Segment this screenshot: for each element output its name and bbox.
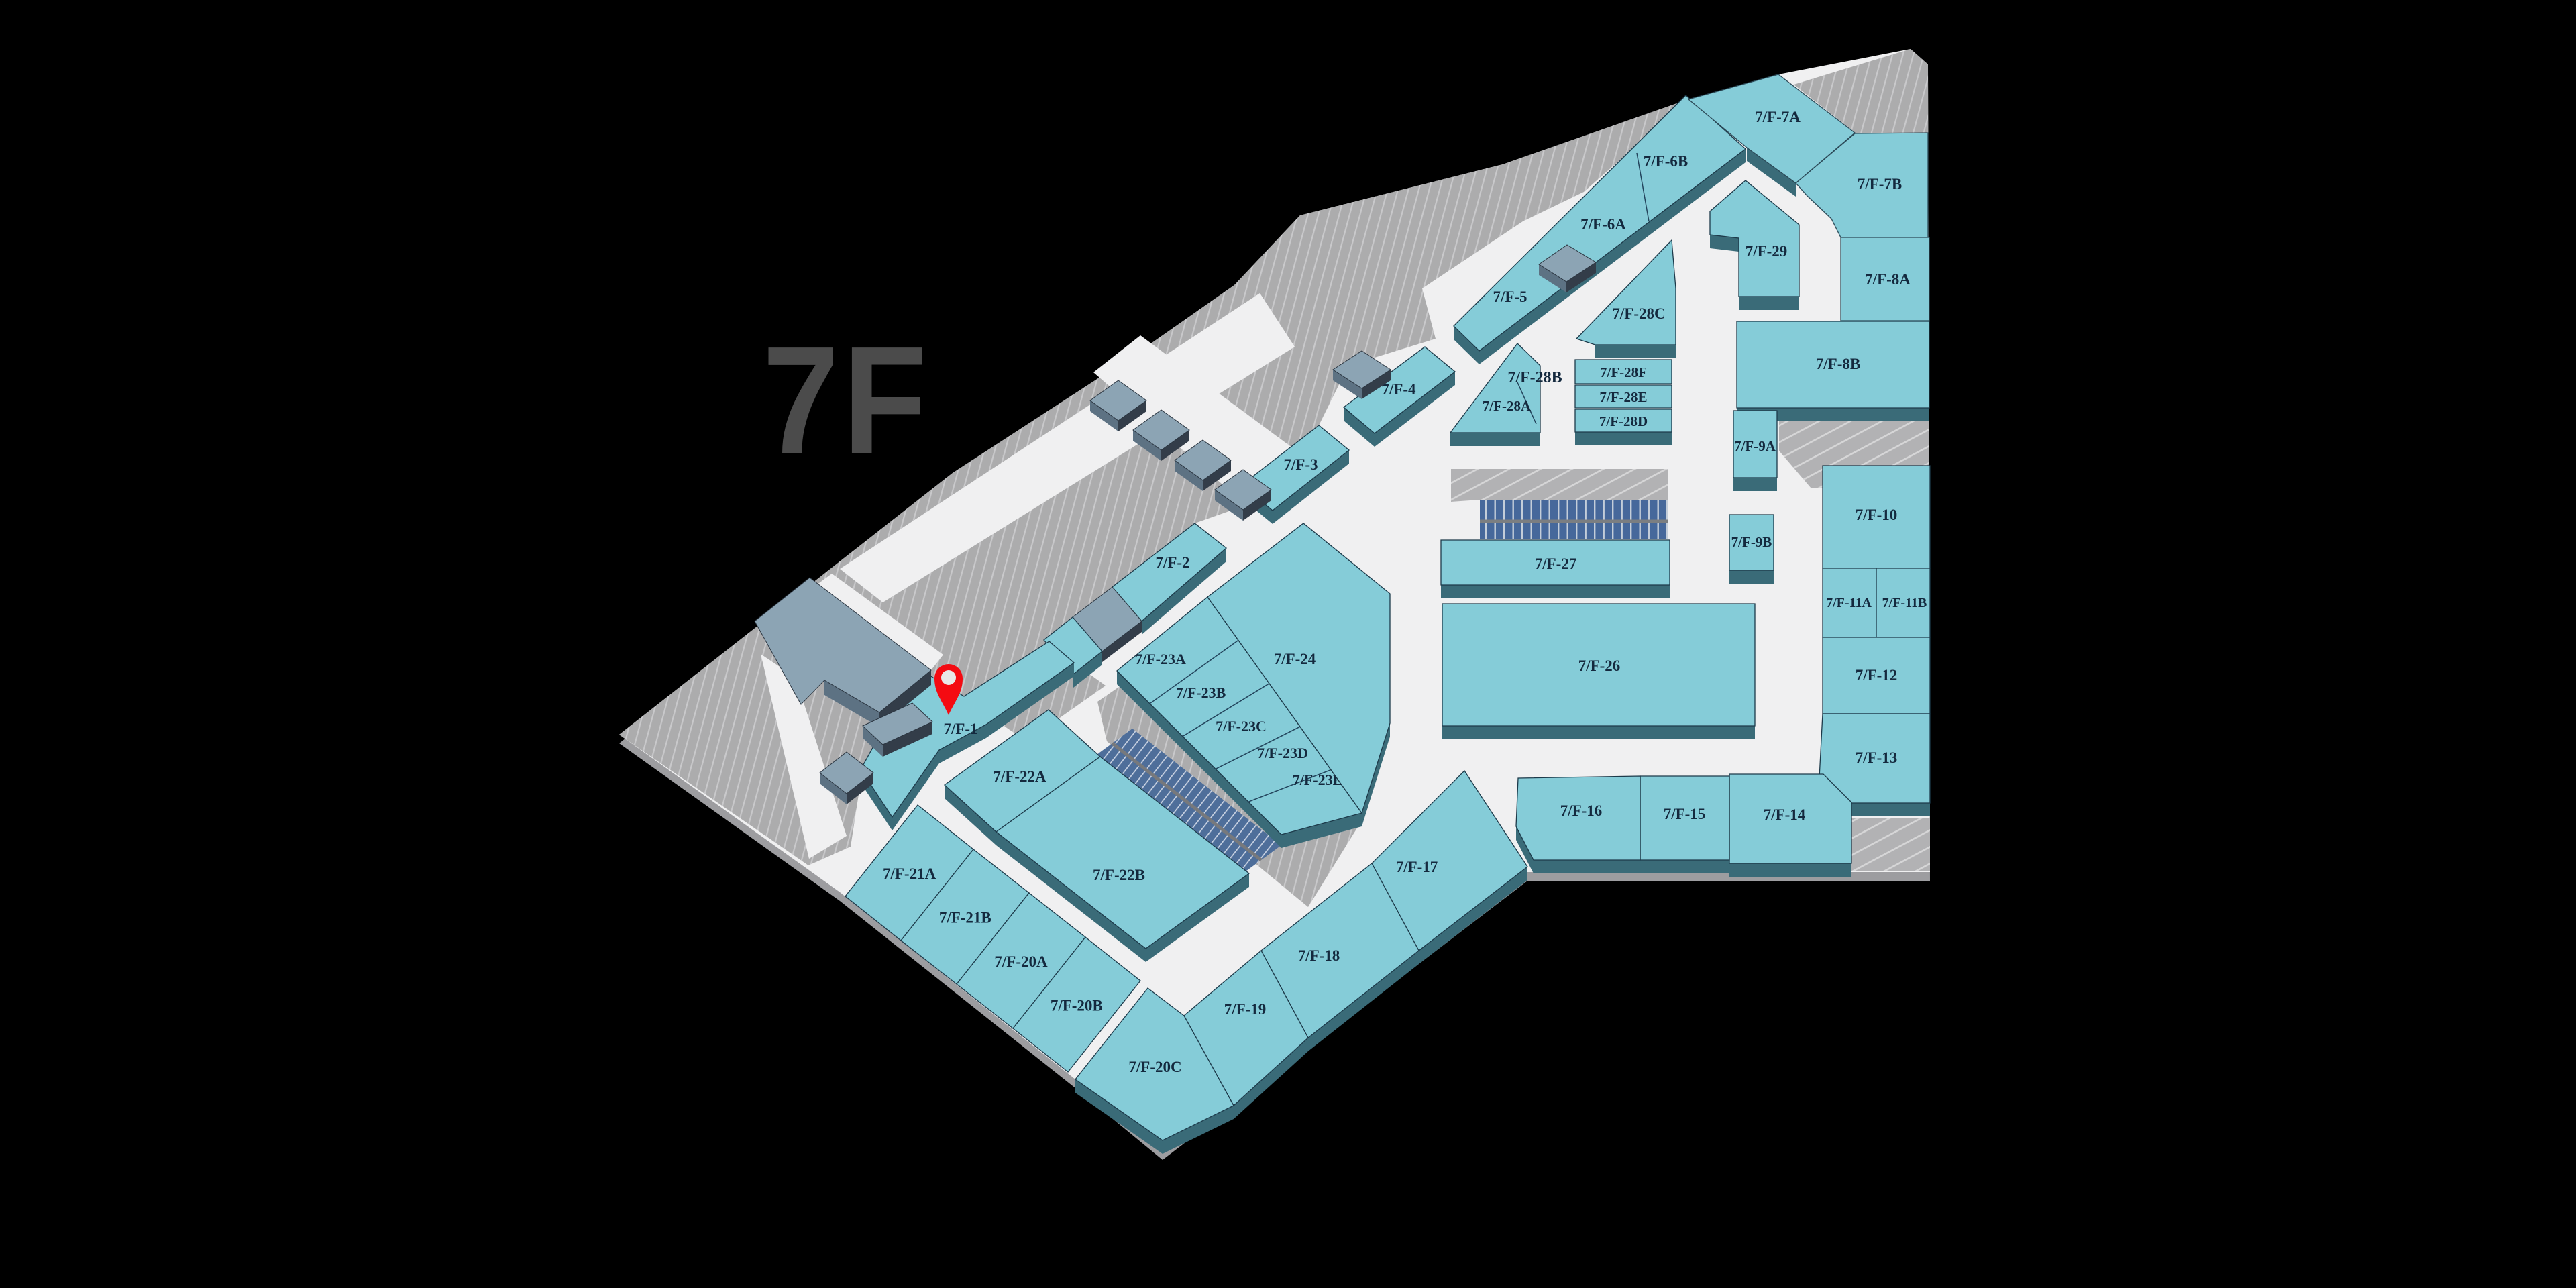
svg-text:7/F-18: 7/F-18 [1298, 947, 1340, 964]
svg-text:7/F-11A: 7/F-11A [1826, 596, 1872, 610]
svg-text:7/F-22B: 7/F-22B [1093, 867, 1145, 883]
svg-text:7/F-4: 7/F-4 [1381, 381, 1416, 398]
svg-text:7/F-3: 7/F-3 [1283, 456, 1318, 473]
svg-text:7/F-22A: 7/F-22A [993, 768, 1046, 785]
svg-text:7/F-23C: 7/F-23C [1216, 718, 1267, 735]
svg-text:7/F-1: 7/F-1 [943, 720, 977, 737]
svg-text:7/F-28C: 7/F-28C [1612, 305, 1665, 322]
svg-text:7F: 7F [763, 315, 930, 485]
svg-text:7/F-14: 7/F-14 [1764, 806, 1806, 823]
svg-text:7/F-16: 7/F-16 [1560, 802, 1603, 819]
svg-text:7/F-7B: 7/F-7B [1858, 176, 1902, 193]
svg-text:7/F-23D: 7/F-23D [1257, 745, 1308, 761]
svg-text:7/F-21A: 7/F-21A [883, 865, 936, 882]
svg-text:7/F-28D: 7/F-28D [1599, 413, 1648, 429]
svg-text:7/F-20A: 7/F-20A [994, 953, 1048, 970]
svg-text:7/F-6A: 7/F-6A [1580, 216, 1626, 233]
svg-text:7/F-8B: 7/F-8B [1816, 356, 1860, 372]
svg-text:7/F-24: 7/F-24 [1274, 651, 1316, 667]
svg-text:7/F-23B: 7/F-23B [1176, 684, 1226, 701]
svg-text:7/F-10: 7/F-10 [1856, 506, 1898, 523]
svg-text:7/F-21B: 7/F-21B [939, 909, 991, 926]
svg-text:7/F-2: 7/F-2 [1155, 554, 1189, 571]
svg-text:7/F-28F: 7/F-28F [1600, 364, 1647, 380]
svg-text:7/F-20B: 7/F-20B [1051, 997, 1103, 1014]
svg-text:7/F-19: 7/F-19 [1224, 1001, 1267, 1018]
svg-text:7/F-9B: 7/F-9B [1731, 534, 1772, 550]
svg-text:7/F-28B: 7/F-28B [1507, 369, 1562, 386]
svg-text:7/F-26: 7/F-26 [1578, 657, 1621, 674]
svg-text:7/F-28A: 7/F-28A [1483, 398, 1532, 414]
svg-text:7/F-28E: 7/F-28E [1599, 389, 1647, 405]
svg-text:7/F-27: 7/F-27 [1535, 555, 1577, 572]
svg-text:7/F-9A: 7/F-9A [1734, 438, 1776, 454]
svg-text:7/F-5: 7/F-5 [1493, 288, 1527, 305]
svg-text:7/F-15: 7/F-15 [1664, 806, 1706, 822]
svg-text:7/F-8A: 7/F-8A [1865, 271, 1911, 288]
svg-text:7/F-12: 7/F-12 [1856, 667, 1898, 684]
svg-text:7/F-17: 7/F-17 [1396, 859, 1438, 875]
svg-text:7/F-29: 7/F-29 [1746, 243, 1788, 260]
svg-text:7/F-7A: 7/F-7A [1755, 109, 1801, 125]
svg-text:7/F-6B: 7/F-6B [1644, 153, 1688, 170]
svg-text:7/F-23A: 7/F-23A [1135, 651, 1186, 667]
svg-text:7/F-11B: 7/F-11B [1882, 596, 1927, 610]
svg-text:7/F-13: 7/F-13 [1856, 749, 1898, 766]
svg-text:7/F-20C: 7/F-20C [1128, 1059, 1181, 1075]
